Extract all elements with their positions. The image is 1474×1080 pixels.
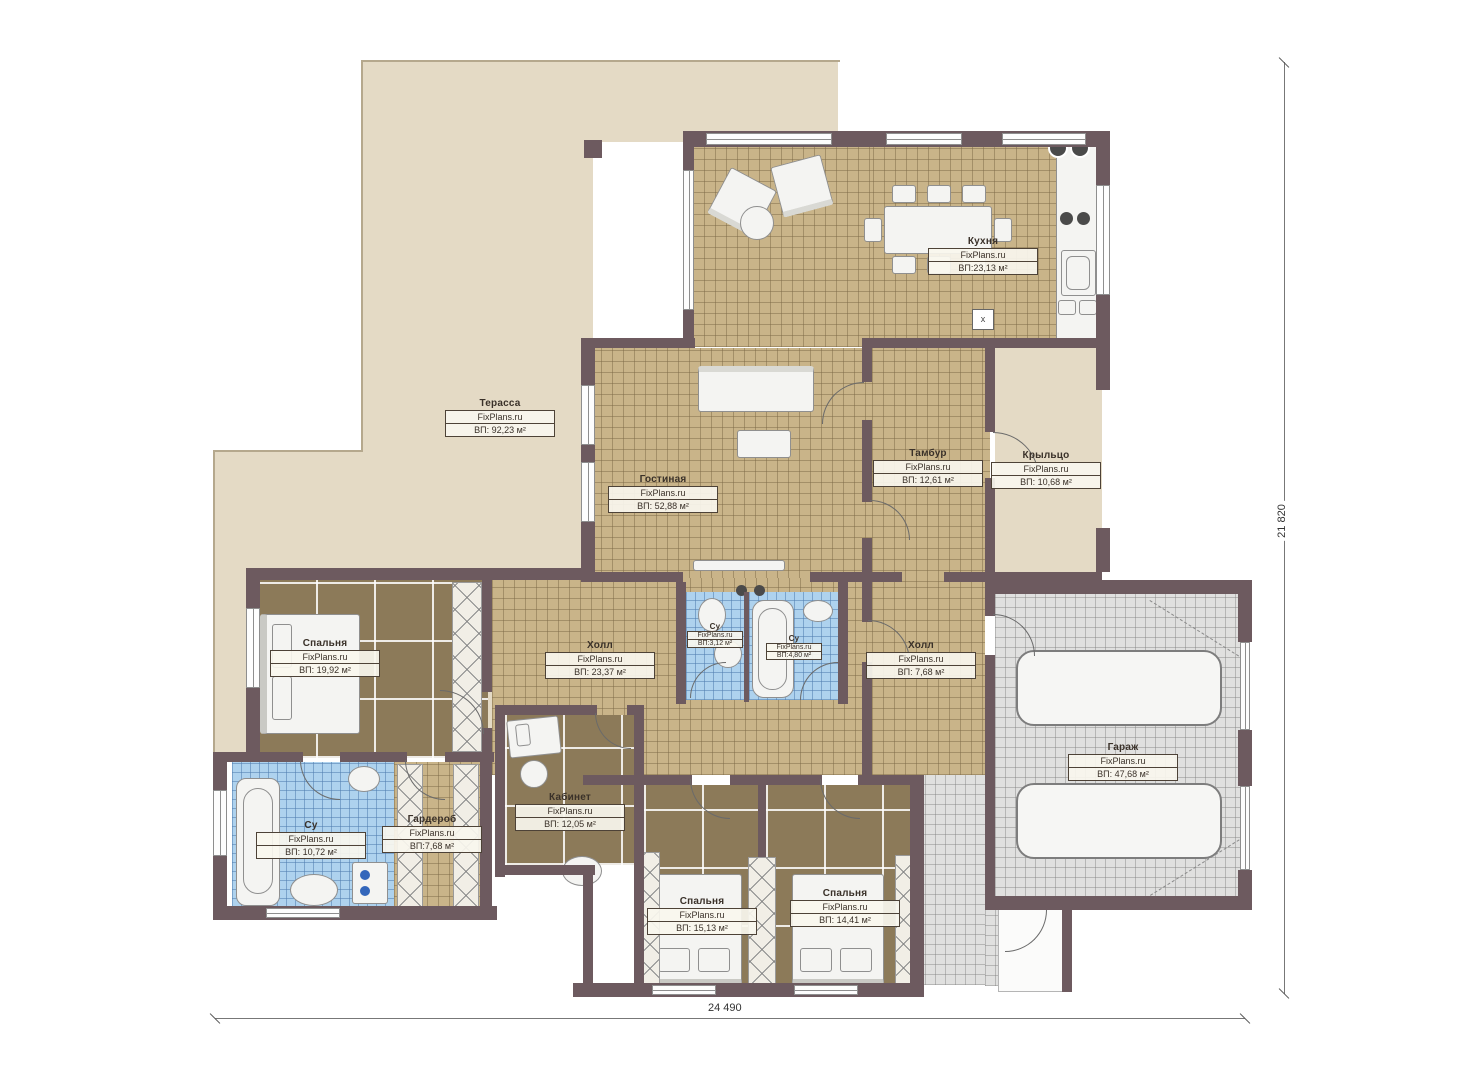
window [886, 133, 962, 145]
wall-segment [862, 420, 872, 502]
wall-segment [495, 865, 595, 875]
room-label-bedroom-center: Спальня FixPlans.ru ВП: 15,13 м² [647, 896, 757, 935]
wall-segment [583, 865, 593, 997]
room-brand: FixPlans.ru [257, 833, 365, 845]
wall-segment [340, 752, 407, 762]
chair [864, 218, 882, 242]
room-name: Холл [866, 640, 976, 651]
room-area: ВП: 12,61 м² [874, 473, 982, 486]
pillow [658, 948, 690, 972]
room-name: Крыльцо [991, 450, 1101, 461]
terrace-edge [361, 60, 363, 452]
room-brand: FixPlans.ru [767, 644, 821, 651]
toilet [348, 766, 380, 792]
window [213, 790, 227, 856]
terrace-edge [213, 450, 215, 758]
dimension-width-label: 24 490 [705, 1002, 745, 1014]
appliance [1058, 300, 1076, 315]
room-name: Тамбур [873, 448, 983, 459]
vent-symbol: x [972, 309, 994, 330]
room-label-wc-small: Су FixPlans.ru ВП:3,12 м² [687, 622, 743, 648]
sink-basin [1060, 212, 1073, 225]
window [581, 385, 595, 445]
room-brand: FixPlans.ru [383, 827, 481, 839]
wall-segment [246, 568, 595, 580]
room-brand: FixPlans.ru [609, 487, 717, 499]
room-label-garage: Гараж FixPlans.ru ВП: 47,68 м² [1068, 742, 1178, 781]
room-brand: FixPlans.ru [929, 249, 1037, 261]
room-area: ВП:3,12 м² [688, 639, 742, 647]
room-brand: FixPlans.ru [867, 653, 975, 665]
room-area: ВП: 10,72 м² [257, 845, 365, 858]
room-label-wardrobe: Гардероб FixPlans.ru ВП:7,68 м² [382, 814, 482, 853]
wall-segment [581, 338, 595, 582]
window [581, 462, 595, 522]
room-brand: FixPlans.ru [648, 909, 756, 921]
room-brand: FixPlans.ru [1069, 755, 1177, 767]
room-name: Спальня [270, 638, 380, 649]
room-name: Гостиная [608, 474, 718, 485]
window [706, 133, 832, 145]
room-label-wc-mid: Су FixPlans.ru ВП:4,80 м² [766, 634, 822, 660]
wall-segment [985, 655, 995, 900]
room-area: ВП: 47,68 м² [1069, 767, 1177, 780]
terrace-column [584, 140, 602, 158]
wall-segment [495, 705, 505, 877]
garage-door [1240, 786, 1250, 870]
washbasin [803, 600, 833, 622]
room-label-bedroom-left: Спальня FixPlans.ru ВП: 19,92 м² [270, 638, 380, 677]
chair [962, 185, 986, 203]
garage-door [1240, 642, 1250, 730]
washbasin [290, 874, 338, 906]
wall-segment [910, 775, 924, 997]
sofa [698, 366, 814, 412]
room-name: Гардероб [382, 814, 482, 825]
room-name: Су [766, 634, 822, 643]
room-brand: FixPlans.ru [546, 653, 654, 665]
wall-segment [1238, 870, 1252, 910]
room-area: ВП: 10,68 м² [992, 475, 1100, 488]
wall-segment [862, 662, 872, 782]
wall-segment [1062, 908, 1072, 992]
room-area: ВП:23,13 м² [929, 261, 1037, 274]
room-label-porch: Крыльцо FixPlans.ru ВП: 10,68 м² [991, 450, 1101, 489]
room-name: Спальня [647, 896, 757, 907]
room-brand: FixPlans.ru [791, 901, 899, 913]
car [1016, 783, 1222, 859]
room-brand: FixPlans.ru [688, 632, 742, 639]
room-area: ВП: 52,88 м² [609, 499, 717, 512]
wall-segment [634, 705, 644, 990]
pillow [800, 948, 832, 972]
room-area: ВП: 92,23 м² [446, 423, 554, 436]
room-label-kitchen: Кухня FixPlans.ru ВП:23,13 м² [928, 236, 1038, 275]
monitor [515, 723, 531, 746]
room-name: Кабинет [515, 792, 625, 803]
window [652, 985, 716, 995]
pillow [840, 948, 872, 972]
window [266, 908, 340, 918]
chair [892, 256, 916, 274]
room-label-hall-main: Холл FixPlans.ru ВП: 23,37 м² [545, 640, 655, 679]
kitchen-counter [1056, 146, 1100, 346]
floor-plan: x Терасса FixPlans.ru ВП: 92,23 м² Кухня… [0, 0, 1474, 1080]
room-area: ВП: 19,92 м² [271, 663, 379, 676]
wall-segment [758, 775, 766, 857]
wall-segment [1096, 348, 1110, 390]
wall-segment [213, 906, 497, 920]
washer-knob [360, 870, 370, 880]
wall-segment [573, 983, 922, 997]
room-label-bedroom-right: Спальня FixPlans.ru ВП: 14,41 м² [790, 888, 900, 927]
desk [506, 715, 562, 758]
window [1002, 133, 1086, 145]
room-name: Су [687, 622, 743, 631]
chair [892, 185, 916, 203]
room-area: ВП:7,68 м² [383, 839, 481, 852]
dimension-line-horizontal [215, 1018, 1245, 1019]
room-name: Кухня [928, 236, 1038, 247]
room-area: ВП: 15,13 м² [648, 921, 756, 934]
room-brand: FixPlans.ru [874, 461, 982, 473]
washing-machine [352, 862, 388, 904]
wall-segment [862, 347, 872, 382]
room-label-living: Гостиная FixPlans.ru ВП: 52,88 м² [608, 474, 718, 513]
spotlight [754, 585, 765, 596]
walkway [915, 775, 995, 985]
wall-segment [985, 580, 1247, 594]
wall-segment [1238, 730, 1252, 786]
room-name: Спальня [790, 888, 900, 899]
dimension-height-label: 21 820 [1276, 501, 1288, 541]
window [683, 170, 694, 310]
room-area: ВП:4,80 м² [767, 651, 821, 659]
room-brand: FixPlans.ru [271, 651, 379, 663]
window [246, 608, 260, 688]
side-table [740, 206, 774, 240]
wall-segment [985, 478, 995, 572]
kitchen-sink-bowl [1066, 256, 1090, 290]
wall-segment [495, 705, 597, 715]
wall-segment [862, 538, 872, 572]
room-label-terrace: Терасса FixPlans.ru ВП: 92,23 м² [445, 398, 555, 437]
wall-segment [1096, 528, 1110, 572]
room-name: Су [256, 820, 366, 831]
wall-segment [583, 572, 683, 582]
room-label-tambour: Тамбур FixPlans.ru ВП: 12,61 м² [873, 448, 983, 487]
room-brand: FixPlans.ru [516, 805, 624, 817]
wall-segment [482, 568, 492, 692]
room-area: ВП: 7,68 м² [867, 665, 975, 678]
wall-segment [676, 582, 686, 704]
car [1016, 650, 1222, 726]
pillow [698, 948, 730, 972]
room-label-bathroom: Су FixPlans.ru ВП: 10,72 м² [256, 820, 366, 859]
room-label-office: Кабинет FixPlans.ru ВП: 12,05 м² [515, 792, 625, 831]
tv-stand [693, 560, 785, 571]
window [794, 985, 858, 995]
room-name: Холл [545, 640, 655, 651]
terrace-edge [215, 450, 363, 452]
terrace-edge [363, 60, 840, 62]
wall-segment [985, 594, 995, 616]
chair [927, 185, 951, 203]
room-brand: FixPlans.ru [992, 463, 1100, 475]
room-area: ВП: 23,37 м² [546, 665, 654, 678]
room-name: Терасса [445, 398, 555, 409]
window [1096, 185, 1110, 295]
room-area: ВП: 14,41 м² [791, 913, 899, 926]
sink-basin [1077, 212, 1090, 225]
wall-segment [744, 592, 749, 702]
wall-segment [1238, 580, 1252, 642]
wall-segment [225, 752, 303, 762]
room-brand: FixPlans.ru [446, 411, 554, 423]
wall-segment [862, 582, 872, 622]
wall-segment [985, 347, 995, 432]
wall-segment [583, 338, 695, 348]
pillow [272, 676, 292, 720]
wall-segment [862, 572, 902, 582]
office-chair [520, 760, 548, 788]
room-area: ВП: 12,05 м² [516, 817, 624, 830]
room-label-hall-right: Холл FixPlans.ru ВП: 7,68 м² [866, 640, 976, 679]
wall-segment [730, 775, 822, 785]
wall-segment [985, 896, 1247, 910]
terrace-floor [363, 62, 838, 142]
coffee-table [737, 430, 791, 458]
wall-segment [838, 582, 848, 704]
room-name: Гараж [1068, 742, 1178, 753]
washer-knob [360, 886, 370, 896]
appliance [1079, 300, 1097, 315]
